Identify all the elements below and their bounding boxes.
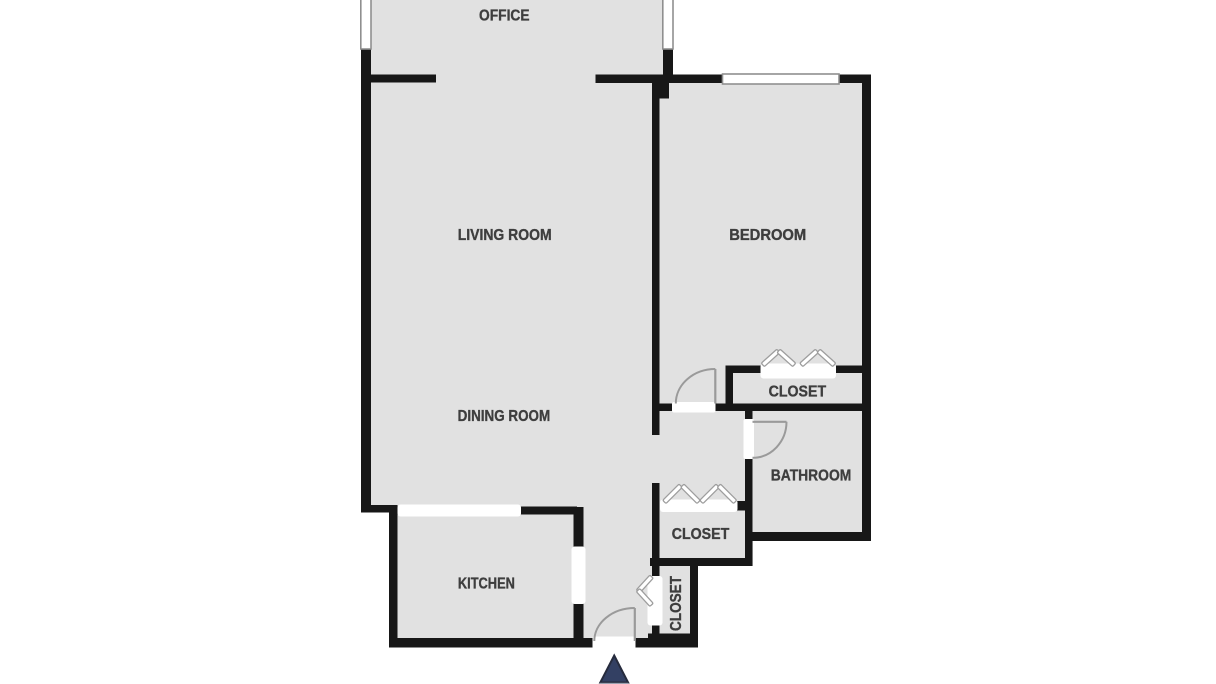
svg-text:LIVING ROOM: LIVING ROOM xyxy=(458,227,552,244)
svg-text:DINING ROOM: DINING ROOM xyxy=(458,408,551,425)
svg-text:BEDROOM: BEDROOM xyxy=(729,227,806,244)
svg-text:KITCHEN: KITCHEN xyxy=(458,576,515,593)
svg-text:OFFICE: OFFICE xyxy=(479,8,530,25)
svg-text:CLOSET: CLOSET xyxy=(769,384,827,401)
svg-text:CLOSET: CLOSET xyxy=(672,526,730,543)
svg-text:CLOSET: CLOSET xyxy=(668,576,685,631)
svg-text:BATHROOM: BATHROOM xyxy=(771,467,852,484)
